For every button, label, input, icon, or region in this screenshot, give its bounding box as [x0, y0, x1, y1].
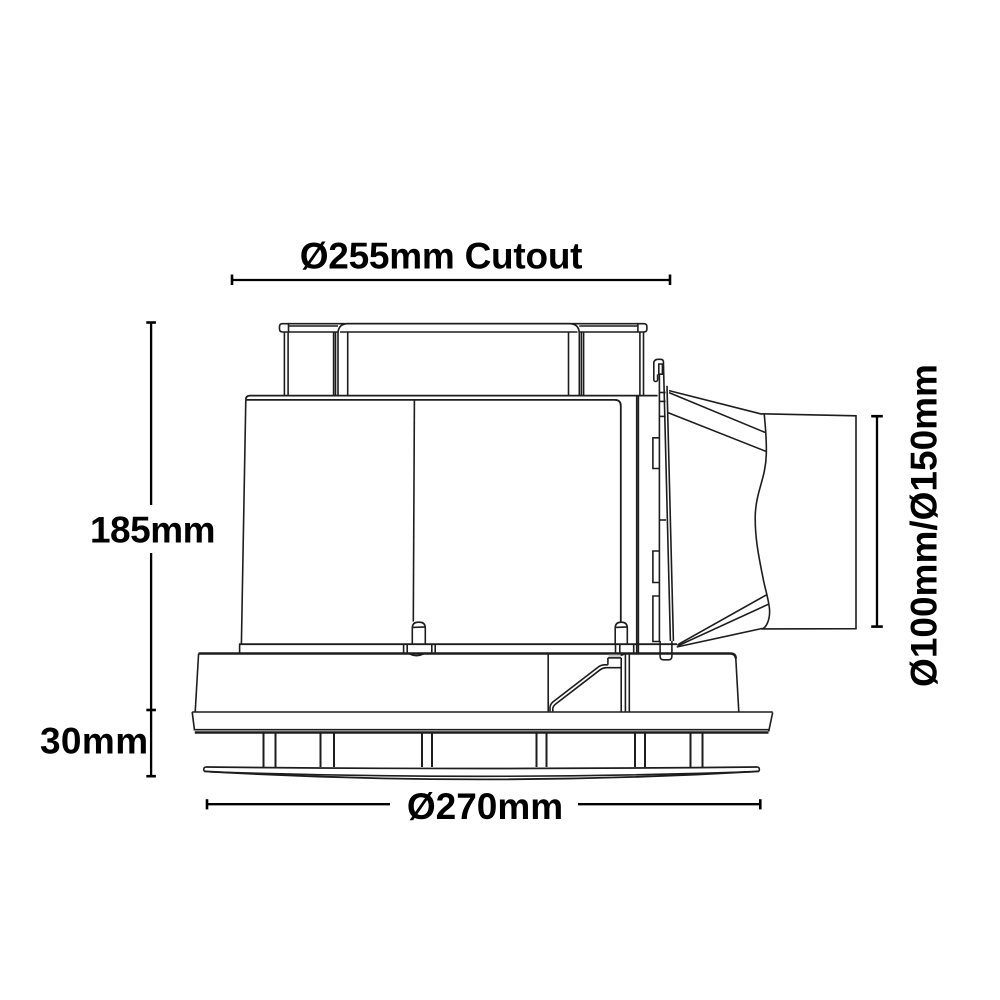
svg-text:Ø255mm Cutout: Ø255mm Cutout: [300, 236, 583, 277]
svg-text:30mm: 30mm: [40, 721, 149, 762]
svg-text:185mm: 185mm: [90, 510, 215, 551]
svg-text:Ø100mm/Ø150mm: Ø100mm/Ø150mm: [904, 364, 945, 687]
svg-text:Ø270mm: Ø270mm: [407, 786, 563, 827]
